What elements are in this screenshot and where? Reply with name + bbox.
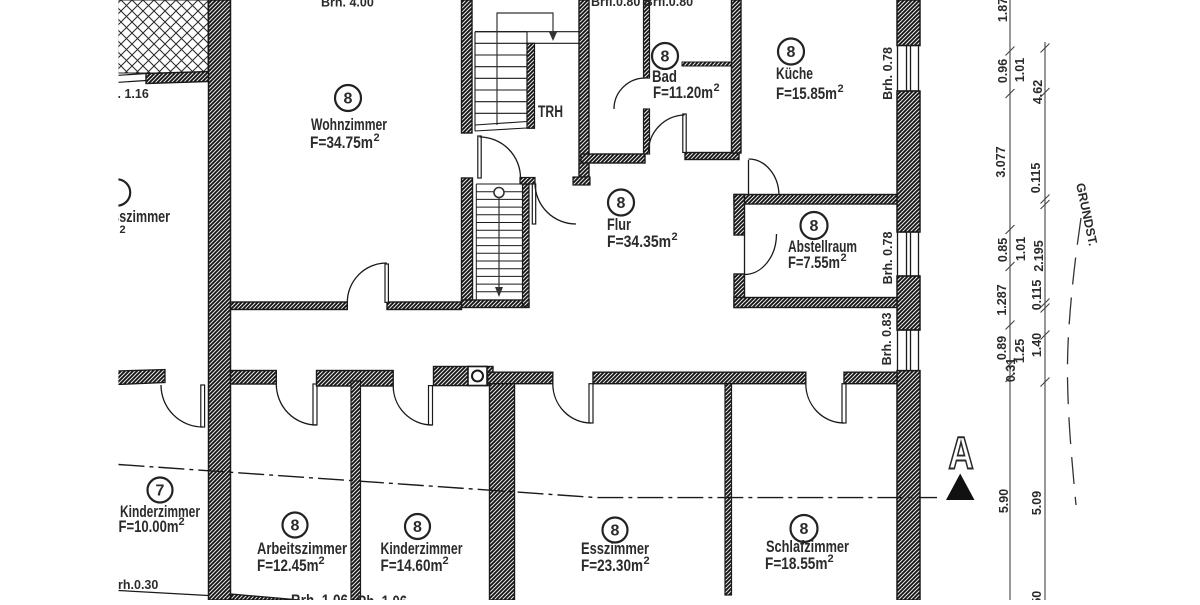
svg-text:2.195: 2.195 [1032, 240, 1046, 271]
svg-text:Brh. 4.00: Brh. 4.00 [321, 0, 374, 10]
svg-text:2: 2 [838, 83, 844, 95]
svg-text:8: 8 [291, 518, 300, 535]
svg-text:1.40: 1.40 [1030, 333, 1044, 357]
svg-text:Küche: Küche [776, 64, 813, 83]
svg-text:Brfl.0.80 Brfl.0.80: Brfl.0.80 Brfl.0.80 [591, 0, 693, 9]
svg-text:F=15.85m: F=15.85m [776, 84, 837, 103]
svg-text:0.31: 0.31 [1004, 358, 1018, 382]
svg-text:8: 8 [344, 91, 353, 108]
svg-text:F=34.35m: F=34.35m [607, 232, 671, 251]
svg-text:F=12.45m: F=12.45m [257, 556, 319, 575]
svg-text:F=11.20m: F=11.20m [653, 83, 713, 102]
svg-text:2.50: 2.50 [1030, 591, 1044, 600]
svg-text:2: 2 [841, 252, 847, 264]
svg-text:7: 7 [156, 483, 165, 500]
svg-text:8: 8 [617, 195, 626, 212]
svg-text:1.287: 1.287 [995, 284, 1009, 315]
svg-text:2: 2 [179, 516, 185, 528]
svg-text:2: 2 [714, 82, 720, 94]
svg-text:F=23.30m: F=23.30m [581, 556, 643, 575]
svg-text:A: A [948, 427, 973, 478]
svg-text:F=18.55m: F=18.55m [765, 554, 828, 573]
svg-text:8: 8 [611, 523, 620, 540]
svg-text:TRH: TRH [538, 102, 563, 121]
svg-text:5.09: 5.09 [1030, 491, 1044, 515]
svg-text:0.89: 0.89 [995, 336, 1009, 360]
svg-text:2: 2 [374, 132, 380, 144]
svg-text:8: 8 [787, 44, 796, 61]
svg-text:1.87: 1.87 [996, 0, 1010, 22]
svg-text:2: 2 [319, 555, 325, 567]
svg-text:2: 2 [828, 553, 834, 565]
svg-text:2: 2 [443, 555, 449, 567]
svg-text:4.62: 4.62 [1031, 80, 1045, 104]
svg-text:F=7.55m: F=7.55m [788, 253, 840, 272]
svg-text:5.90: 5.90 [997, 489, 1011, 513]
svg-text:F=34.75m: F=34.75m [310, 133, 373, 152]
svg-text:Brh. 1.06: Brh. 1.06 [291, 591, 348, 600]
svg-text:0.115: 0.115 [1029, 163, 1043, 194]
svg-text:F=10.00m: F=10.00m [119, 517, 179, 536]
svg-text:Rh. 1.06: Rh. 1.06 [357, 592, 407, 600]
svg-text:2: 2 [120, 224, 126, 236]
svg-text:0.96: 0.96 [996, 59, 1010, 83]
svg-text:2: 2 [672, 231, 678, 243]
svg-text:1.01: 1.01 [1013, 58, 1027, 82]
svg-text:8: 8 [661, 49, 670, 66]
svg-text:0.115: 0.115 [1030, 280, 1044, 311]
svg-text:1.01: 1.01 [1014, 237, 1028, 261]
svg-text:Brh. 0.78: Brh. 0.78 [881, 232, 895, 285]
svg-text:3.077: 3.077 [994, 146, 1008, 177]
svg-text:8: 8 [800, 521, 809, 538]
svg-text:F=14.60m: F=14.60m [381, 556, 443, 575]
svg-text:Brh. 0.83: Brh. 0.83 [880, 313, 894, 366]
svg-text:2: 2 [644, 555, 650, 567]
svg-text:8: 8 [810, 218, 819, 235]
svg-text:0.85: 0.85 [996, 238, 1010, 262]
svg-text:Brh. 0.78: Brh. 0.78 [881, 47, 895, 100]
svg-text:8: 8 [413, 519, 422, 536]
